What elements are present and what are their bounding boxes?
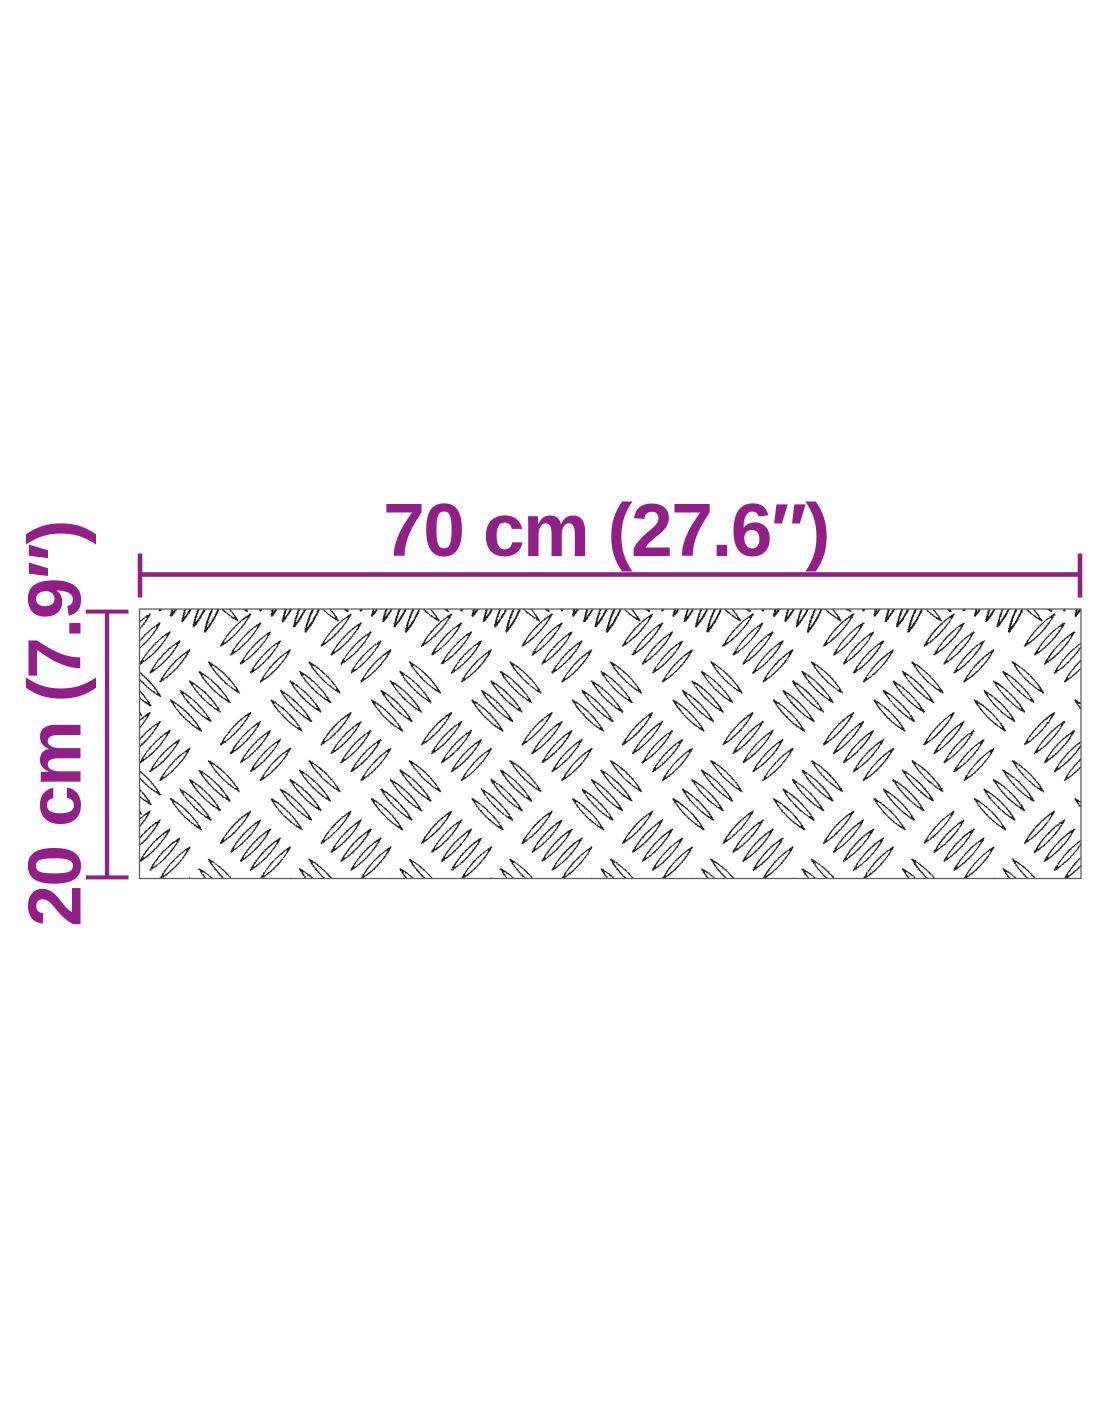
svg-text:70 cm (27.6″): 70 cm (27.6″): [383, 488, 829, 572]
svg-text:20 cm (7.9″): 20 cm (7.9″): [13, 521, 97, 927]
